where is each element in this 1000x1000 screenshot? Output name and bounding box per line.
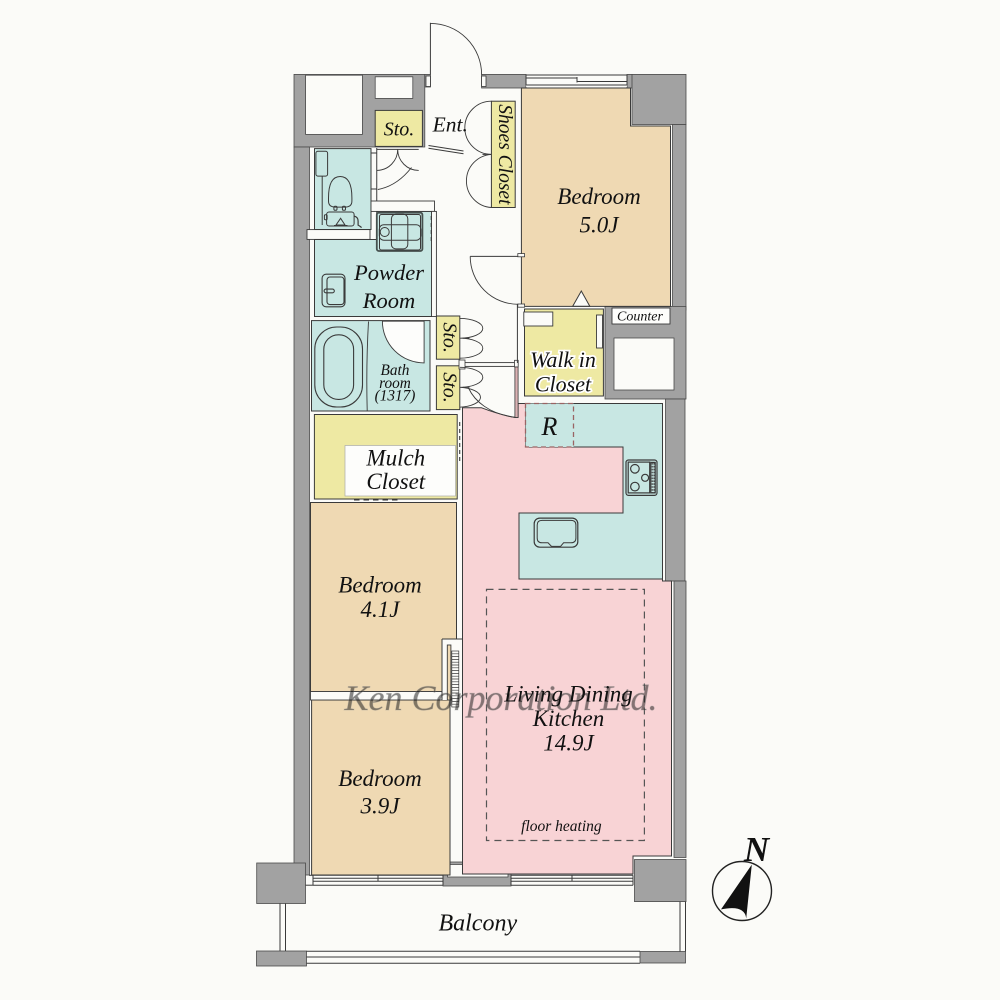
svg-text:Walk in: Walk in <box>530 347 596 372</box>
svg-text:R: R <box>541 412 558 441</box>
svg-text:14.9J: 14.9J <box>543 731 595 756</box>
svg-text:floor heating: floor heating <box>521 818 602 835</box>
svg-text:5.0J: 5.0J <box>580 213 621 238</box>
svg-text:4.1J: 4.1J <box>361 597 402 622</box>
svg-text:Counter: Counter <box>617 310 663 325</box>
svg-text:Sto.: Sto. <box>439 322 461 353</box>
svg-text:Mulch: Mulch <box>365 446 425 471</box>
svg-text:Sto.: Sto. <box>384 119 415 141</box>
svg-text:(1317): (1317) <box>375 388 416 405</box>
svg-text:Closet: Closet <box>535 372 592 397</box>
svg-text:Kitchen: Kitchen <box>532 706 605 731</box>
svg-text:Bedroom: Bedroom <box>557 184 640 209</box>
svg-text:N: N <box>743 830 771 869</box>
svg-text:Bedroom: Bedroom <box>338 573 421 598</box>
svg-text:Bedroom: Bedroom <box>338 766 421 791</box>
svg-text:Powder: Powder <box>353 260 424 285</box>
svg-text:Closet: Closet <box>366 469 425 494</box>
svg-text:Living Dining: Living Dining <box>503 682 632 707</box>
svg-text:Balcony: Balcony <box>438 911 517 937</box>
svg-text:Sto.: Sto. <box>439 372 461 403</box>
svg-text:Shoes Closet: Shoes Closet <box>494 104 515 205</box>
svg-text:Ent.: Ent. <box>432 112 468 136</box>
svg-text:Room: Room <box>362 288 416 313</box>
svg-text:3.9J: 3.9J <box>360 794 402 819</box>
